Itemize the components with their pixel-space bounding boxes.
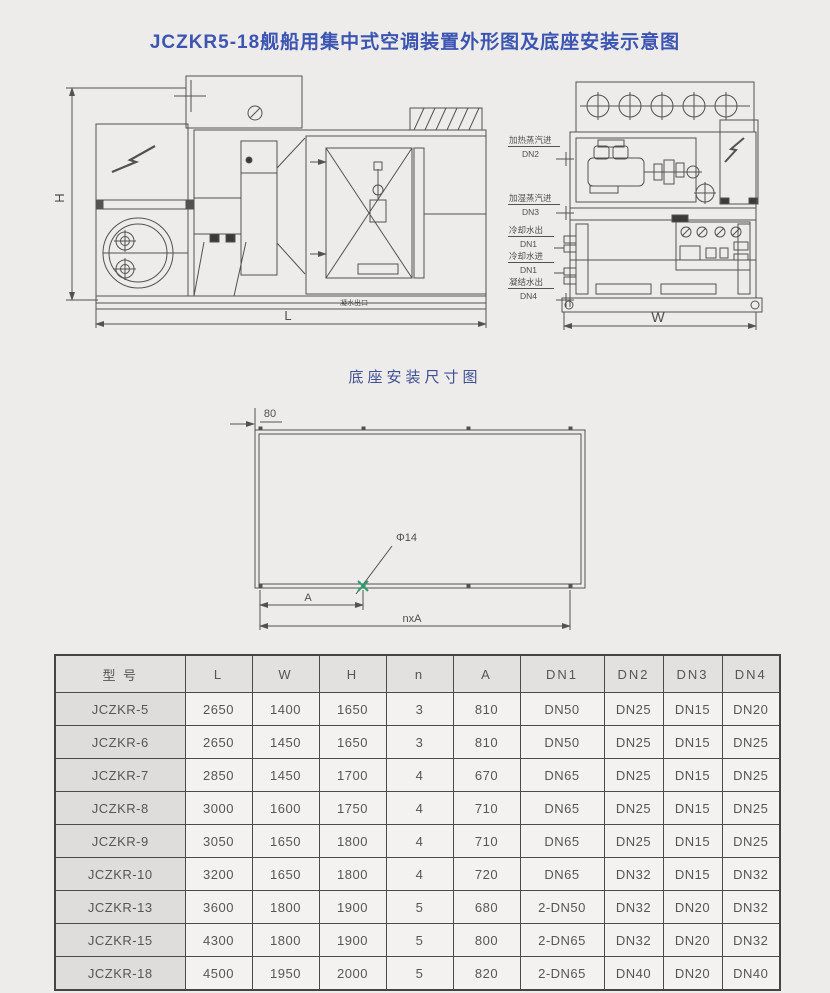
table-cell: DN50 bbox=[520, 726, 604, 759]
table-header-row: 型 号 L W H n A DN1 DN2 DN3 DN4 bbox=[55, 655, 780, 693]
top-instrument-box bbox=[174, 76, 302, 128]
table-cell: DN15 bbox=[663, 759, 722, 792]
table-cell: 1400 bbox=[252, 693, 319, 726]
table-cell: 1800 bbox=[319, 858, 386, 891]
table-cell: DN20 bbox=[663, 957, 722, 991]
pitch-dim-label: A bbox=[304, 592, 312, 604]
table-cell: 810 bbox=[453, 726, 520, 759]
spec-table: 型 号 L W H n A DN1 DN2 DN3 DN4 JCZKR-5265… bbox=[54, 654, 781, 991]
table-cell: DN25 bbox=[604, 726, 663, 759]
hole-dia-label: Φ14 bbox=[396, 532, 417, 544]
port-label: 凝结水出 bbox=[509, 277, 543, 287]
edge-dim-label: 80 bbox=[264, 408, 276, 420]
table-cell: 1450 bbox=[252, 726, 319, 759]
port-size: DN3 bbox=[522, 207, 539, 217]
table-cell: 720 bbox=[453, 858, 520, 891]
side-view-drawing: H 凝水出口 L bbox=[58, 68, 510, 336]
table-cell: DN32 bbox=[604, 858, 663, 891]
table-cell: DN20 bbox=[722, 693, 780, 726]
table-row: JCZKR-72850145017004670DN65DN25DN15DN25 bbox=[55, 759, 780, 792]
base-diagram-lines bbox=[230, 408, 585, 630]
table-cell: DN32 bbox=[722, 924, 780, 957]
table-cell: 1650 bbox=[319, 726, 386, 759]
main-casing bbox=[194, 130, 486, 296]
table-cell: 4 bbox=[386, 792, 453, 825]
h-dimension bbox=[66, 88, 186, 300]
table-cell: 1650 bbox=[252, 825, 319, 858]
table-cell: DN32 bbox=[604, 891, 663, 924]
catalog-page: JCZKR5-18舰船用集中式空调装置外形图及底座安装示意图 bbox=[0, 0, 830, 993]
model-cell: JCZKR-13 bbox=[55, 891, 185, 924]
table-cell: DN32 bbox=[722, 891, 780, 924]
dim-label-w: W bbox=[651, 309, 665, 325]
table-cell: DN32 bbox=[722, 858, 780, 891]
table-cell: 5 bbox=[386, 957, 453, 991]
table-cell: DN50 bbox=[520, 693, 604, 726]
table-cell: 820 bbox=[453, 957, 520, 991]
table-header-cell: DN1 bbox=[520, 655, 604, 693]
table-cell: 3600 bbox=[185, 891, 252, 924]
table-cell: DN65 bbox=[520, 792, 604, 825]
table-row: JCZKR-1543001800190058002-DN65DN32DN20DN… bbox=[55, 924, 780, 957]
table-header-cell: 型 号 bbox=[55, 655, 185, 693]
table-cell: 3200 bbox=[185, 858, 252, 891]
table-cell: 2000 bbox=[319, 957, 386, 991]
vent-hatch bbox=[406, 108, 486, 130]
table-row: JCZKR-103200165018004720DN65DN32DN15DN32 bbox=[55, 858, 780, 891]
table-cell: DN15 bbox=[663, 858, 722, 891]
table-row: JCZKR-1336001800190056802-DN50DN32DN20DN… bbox=[55, 891, 780, 924]
table-cell: 680 bbox=[453, 891, 520, 924]
table-cell: 5 bbox=[386, 924, 453, 957]
table-cell: DN25 bbox=[722, 759, 780, 792]
table-cell: DN20 bbox=[663, 924, 722, 957]
port-label: 加湿蒸汽进 bbox=[509, 193, 552, 203]
compressor-bay bbox=[570, 132, 756, 220]
table-cell: 3000 bbox=[185, 792, 252, 825]
table-cell: DN65 bbox=[520, 825, 604, 858]
model-cell: JCZKR-6 bbox=[55, 726, 185, 759]
end-view-drawing: 加热蒸汽进 DN2 加湿蒸汽进 DN3 冷却水出 DN1 冷却水进 DN1 凝结… bbox=[506, 72, 810, 334]
total-dim-label: nxA bbox=[403, 613, 423, 625]
table-row: JCZKR-93050165018004710DN65DN25DN15DN25 bbox=[55, 825, 780, 858]
table-cell: DN20 bbox=[663, 891, 722, 924]
coil-section bbox=[306, 136, 486, 294]
table-cell: 1450 bbox=[252, 759, 319, 792]
table-row: JCZKR-62650145016503810DN50DN25DN15DN25 bbox=[55, 726, 780, 759]
table-cell: 2850 bbox=[185, 759, 252, 792]
table-cell: DN25 bbox=[604, 792, 663, 825]
port-label: 冷却水进 bbox=[509, 251, 544, 261]
port-size: DN4 bbox=[520, 291, 537, 301]
table-cell: DN15 bbox=[663, 825, 722, 858]
table-cell: DN65 bbox=[520, 759, 604, 792]
table-header-cell: W bbox=[252, 655, 319, 693]
table-header-cell: DN3 bbox=[663, 655, 722, 693]
table-row: JCZKR-52650140016503810DN50DN25DN15DN20 bbox=[55, 693, 780, 726]
base-outline bbox=[255, 427, 585, 588]
table-cell: 670 bbox=[453, 759, 520, 792]
page-title: JCZKR5-18舰船用集中式空调装置外形图及底座安装示意图 bbox=[0, 27, 830, 54]
table-cell: 4300 bbox=[185, 924, 252, 957]
table-cell: DN40 bbox=[604, 957, 663, 991]
condenser-bay bbox=[564, 220, 756, 298]
table-cell: 2-DN65 bbox=[520, 957, 604, 991]
table-cell: 1800 bbox=[319, 825, 386, 858]
dim-label-l: L bbox=[284, 308, 291, 323]
model-cell: JCZKR-18 bbox=[55, 957, 185, 991]
base-installation-diagram: 80 Φ14 A nxA bbox=[224, 398, 620, 636]
table-cell: 2-DN50 bbox=[520, 891, 604, 924]
port-label: 冷却水出 bbox=[509, 225, 543, 235]
table-cell: DN15 bbox=[663, 726, 722, 759]
table-cell: DN25 bbox=[604, 825, 663, 858]
table-cell: DN32 bbox=[604, 924, 663, 957]
table-header-cell: DN4 bbox=[722, 655, 780, 693]
table-header-cell: A bbox=[453, 655, 520, 693]
table-cell: DN65 bbox=[520, 858, 604, 891]
electrical-panel bbox=[96, 124, 188, 200]
table-cell: 4500 bbox=[185, 957, 252, 991]
table-cell: 1700 bbox=[319, 759, 386, 792]
lightning-icon bbox=[725, 138, 744, 162]
table-row: JCZKR-83000160017504710DN65DN25DN15DN25 bbox=[55, 792, 780, 825]
base-diagram-title: 底座安装尺寸图 bbox=[0, 366, 830, 387]
model-cell: JCZKR-10 bbox=[55, 858, 185, 891]
table-cell: 3050 bbox=[185, 825, 252, 858]
table-cell: 3 bbox=[386, 693, 453, 726]
port-size: DN2 bbox=[522, 149, 539, 159]
hole-marker-icon bbox=[358, 581, 368, 591]
table-cell: DN15 bbox=[663, 693, 722, 726]
air-outlet-band bbox=[576, 82, 754, 132]
table-cell: DN40 bbox=[722, 957, 780, 991]
port-size: DN1 bbox=[520, 239, 537, 249]
table-cell: 1800 bbox=[252, 891, 319, 924]
table-header-cell: L bbox=[185, 655, 252, 693]
model-cell: JCZKR-15 bbox=[55, 924, 185, 957]
table-cell: 1800 bbox=[252, 924, 319, 957]
table-cell: 4 bbox=[386, 858, 453, 891]
table-cell: 710 bbox=[453, 792, 520, 825]
table-cell: DN25 bbox=[722, 792, 780, 825]
table-cell: 800 bbox=[453, 924, 520, 957]
electrical-cabinet bbox=[720, 120, 758, 204]
table-cell: 1900 bbox=[319, 891, 386, 924]
table-cell: 3 bbox=[386, 726, 453, 759]
table-cell: 1650 bbox=[252, 858, 319, 891]
table-cell: 2650 bbox=[185, 693, 252, 726]
compressor-end-circles bbox=[96, 209, 188, 296]
table-row: JCZKR-1845001950200058202-DN65DN40DN20DN… bbox=[55, 957, 780, 991]
table-cell: 1650 bbox=[319, 693, 386, 726]
table-cell: 710 bbox=[453, 825, 520, 858]
table-cell: 1950 bbox=[252, 957, 319, 991]
side-view-lines bbox=[66, 76, 486, 328]
port-label: 加热蒸汽进 bbox=[509, 135, 552, 145]
table-header-cell: H bbox=[319, 655, 386, 693]
table-cell: DN25 bbox=[604, 759, 663, 792]
fan-section bbox=[194, 138, 305, 296]
table-cell: 1900 bbox=[319, 924, 386, 957]
lightning-icon bbox=[112, 146, 155, 172]
table-cell: 1750 bbox=[319, 792, 386, 825]
table-cell: DN25 bbox=[722, 825, 780, 858]
table-cell: 1600 bbox=[252, 792, 319, 825]
table-cell: 4 bbox=[386, 825, 453, 858]
model-cell: JCZKR-9 bbox=[55, 825, 185, 858]
port-size: DN1 bbox=[520, 265, 537, 275]
table-cell: DN25 bbox=[604, 693, 663, 726]
table-cell: 4 bbox=[386, 759, 453, 792]
table-cell: 5 bbox=[386, 891, 453, 924]
dim-label-h: H bbox=[52, 193, 67, 202]
table-cell: DN25 bbox=[722, 726, 780, 759]
model-cell: JCZKR-7 bbox=[55, 759, 185, 792]
model-cell: JCZKR-5 bbox=[55, 693, 185, 726]
table-cell: DN15 bbox=[663, 792, 722, 825]
table-header-cell: n bbox=[386, 655, 453, 693]
panel-tag bbox=[672, 215, 688, 222]
end-view-lines bbox=[508, 82, 762, 330]
table-cell: 2-DN65 bbox=[520, 924, 604, 957]
condensate-label: 凝水出口 bbox=[340, 298, 368, 307]
table-cell: 2650 bbox=[185, 726, 252, 759]
table-header-cell: DN2 bbox=[604, 655, 663, 693]
table-cell: 810 bbox=[453, 693, 520, 726]
model-cell: JCZKR-8 bbox=[55, 792, 185, 825]
